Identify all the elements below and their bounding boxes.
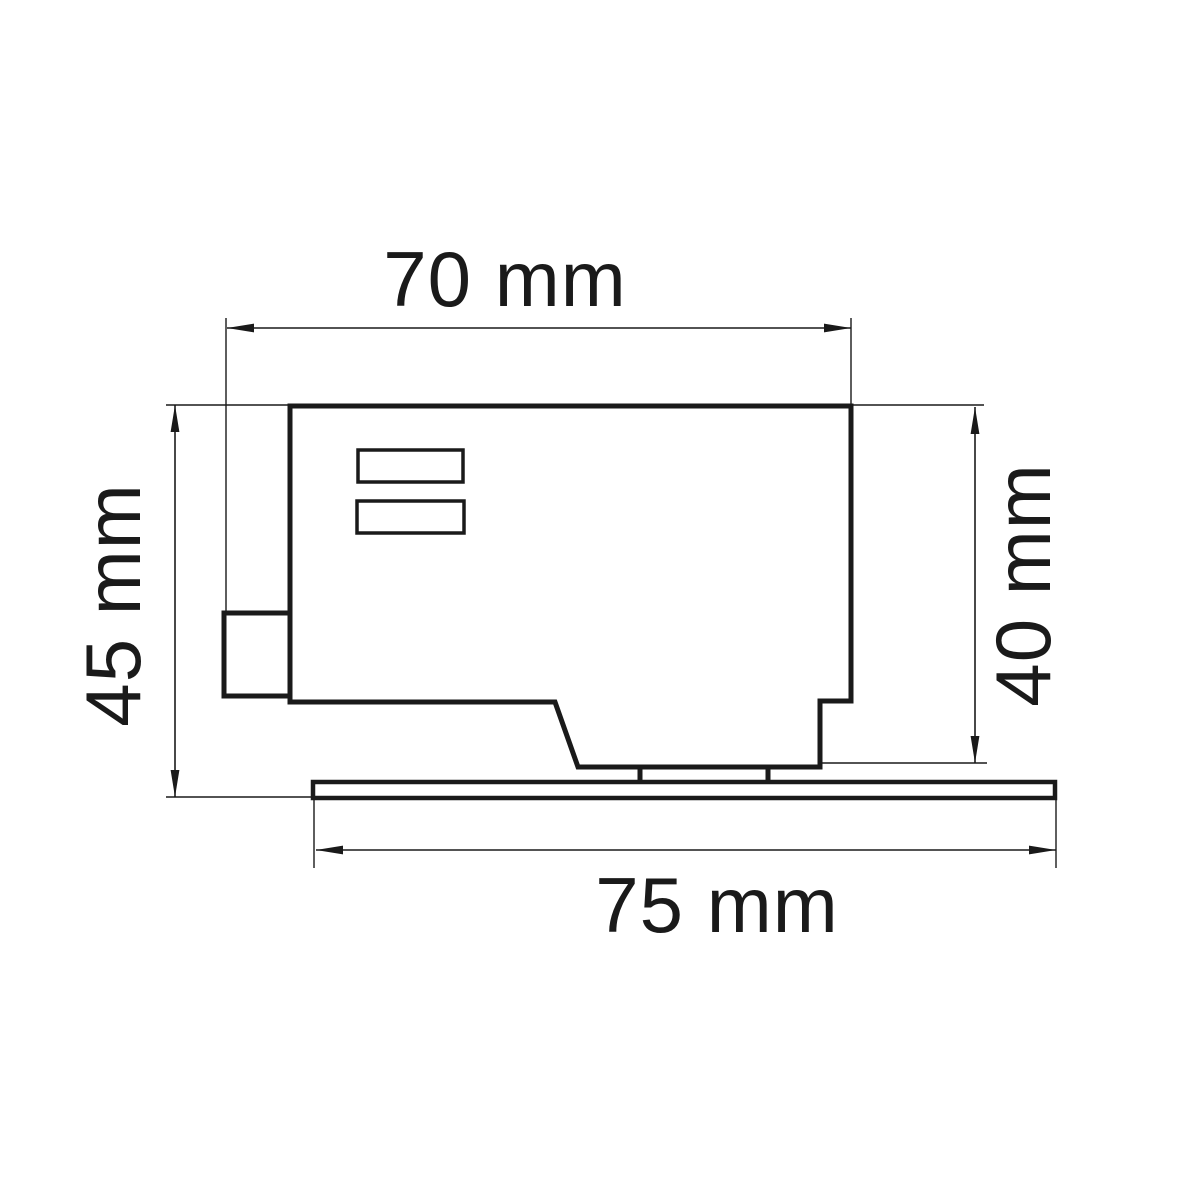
dimension-top-width: 70 mm bbox=[226, 235, 851, 613]
arrowhead-top bbox=[171, 405, 180, 432]
dimension-bottom-width: 75 mm bbox=[314, 800, 1056, 949]
arrowhead-right bbox=[1029, 846, 1056, 855]
dimension-left-height: 45 mm bbox=[69, 405, 313, 797]
dimension-label-left: 45 mm bbox=[69, 483, 157, 726]
arrowhead-top bbox=[971, 407, 980, 434]
drawing-canvas: 70 mm 45 mm 40 mm 75 mm bbox=[0, 0, 1200, 1200]
vent-slot-top bbox=[358, 450, 463, 482]
device-outline bbox=[224, 406, 1055, 798]
dimension-label-top: 70 mm bbox=[383, 235, 626, 323]
device-body bbox=[290, 406, 851, 767]
dimension-label-bottom: 75 mm bbox=[595, 861, 838, 949]
arrowhead-right bbox=[824, 324, 851, 333]
arrowhead-bottom bbox=[971, 736, 980, 763]
technical-drawing: 70 mm 45 mm 40 mm 75 mm bbox=[0, 0, 1200, 1200]
arrowhead-bottom bbox=[171, 770, 180, 797]
dimension-right-height: 40 mm bbox=[822, 405, 1067, 763]
arrowhead-left bbox=[316, 846, 343, 855]
base-plate bbox=[313, 782, 1055, 798]
arrowhead-left bbox=[227, 324, 254, 333]
connector-block bbox=[224, 613, 290, 696]
dimension-label-right: 40 mm bbox=[979, 463, 1067, 706]
vent-slot-bottom bbox=[357, 501, 464, 533]
